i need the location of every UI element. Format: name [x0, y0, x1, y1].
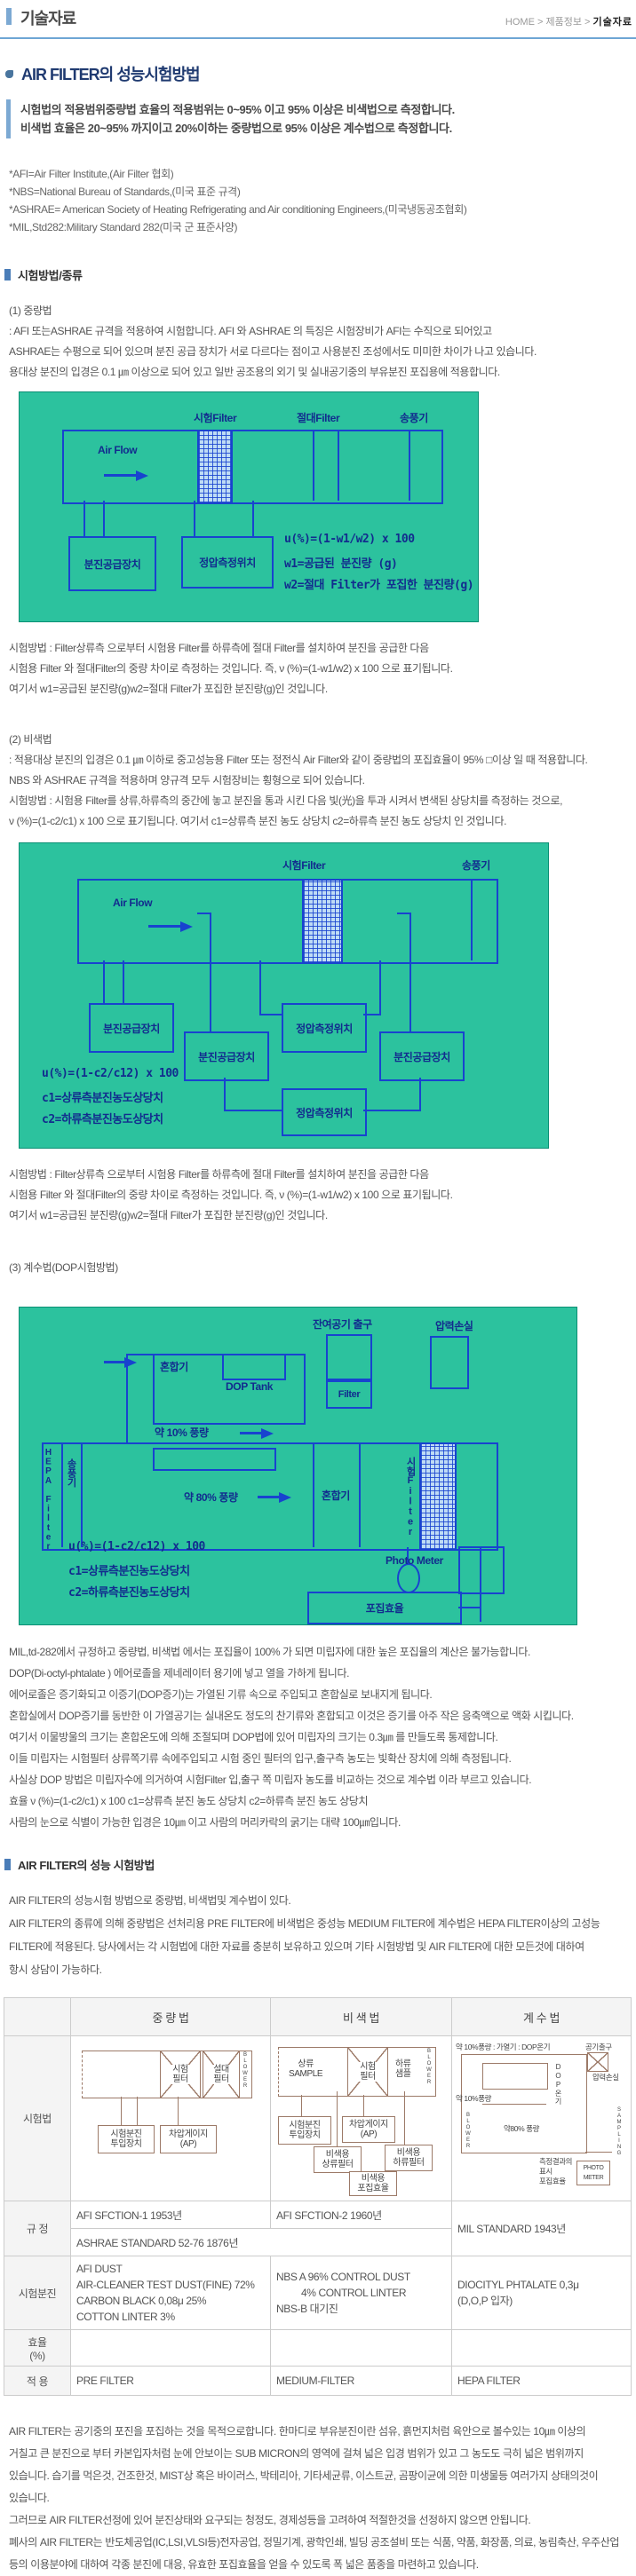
method1-description: (1) 중량법 : AFI 또는ASHRAE 규격을 적용하여 시험합니다. A…: [9, 301, 636, 383]
dop-description: MIL,td-282에서 규정하고 중량법, 비색법 에서는 포집율이 100%…: [9, 1641, 636, 1833]
intro-summary: 시험법의 적용범위중량법 효율의 적용범위는 0~95% 이고 95% 이상은 …: [6, 99, 636, 138]
formula-line: u(%)=(1-w1/w2) x 100: [284, 533, 415, 546]
breadcrumb: HOME > 제품정보 > 기술자료: [505, 14, 632, 28]
row-label: 시험분진: [4, 2256, 71, 2330]
diagram-label: 시험Filter: [282, 857, 325, 873]
eighty-percent-label: 약 80% 풍량: [184, 1489, 238, 1505]
blower-label: BLOWER: [465, 2113, 471, 2152]
photo-meter-label: Photo Meter: [386, 1554, 443, 1567]
method2-title: (2) 비색법: [9, 730, 636, 750]
collection-efficiency-box: 포집효율: [307, 1592, 462, 1624]
row-label: 효율 (%): [4, 2330, 71, 2367]
mini-diagram-weight: 시험 필터 설대 필터 BLOWER 시험분진 투입장치 차압게이지 (AP): [71, 2036, 270, 2201]
filter-box: Filter: [326, 1380, 372, 1409]
upstream-sample-label: 상류 SAMPLE: [289, 2059, 322, 2079]
eighty-percent-label: 약80% 풍량: [504, 2123, 539, 2134]
pressure-loss-label: 압력손실: [592, 2072, 619, 2082]
dust-inject-box: 시험분진 투입장치: [278, 2116, 331, 2145]
top-flow-label: 약 10%풍량 : 가열기 : DOP온기: [456, 2042, 550, 2052]
col-header-weight: 중 량 법: [71, 1998, 271, 2036]
diagram-weight-method: 시험Filter 절대Filter 송풍기 Air Flow 분진공급장치 정압…: [19, 391, 479, 622]
valve-icon: [397, 1563, 420, 1593]
intro-line: 비색법 효율은 20~95% 까지이고 20%이하는 중량법으로 95% 이상은…: [20, 119, 636, 138]
table-row-efficiency: 효율 (%): [4, 2330, 632, 2367]
diagram-label: 압력손실: [435, 1318, 473, 1333]
diagram-label: 송풍기: [400, 410, 428, 425]
ten-percent-label: 약 10% 풍량: [155, 1425, 209, 1440]
static-pressure-box: 정압측정위치: [181, 536, 274, 589]
intro-line: 시험법의 적용범위중량법 효율의 적용범위는 0~95% 이고 95% 이상은 …: [20, 100, 636, 119]
diagram-dop-method: 잔여공기 출구 압력손실 Filter 혼합기 DOP Tank 약 10% 풍…: [19, 1307, 577, 1625]
formula-line: w1=공급된 분진량 (g): [284, 554, 397, 571]
dp-gauge-box: 차압게이지 (AP): [342, 2116, 395, 2143]
method1-result: 시험방법 : Filter상류측 으로부터 시험용 Filter를 하류측에 절…: [9, 638, 636, 699]
table-row-standard-1: 규 정 AFI SFCTION-1 1953년 AFI SFCTION-2 19…: [4, 2201, 632, 2229]
table-row-apply: 적 용 PRE FILTER MEDIUM-FILTER HEPA FILTER: [4, 2367, 632, 2396]
test-filter-element: [197, 430, 233, 504]
photo-meter-box: [458, 1546, 505, 1594]
breadcrumb-current: 기술자료: [593, 17, 632, 28]
pressure-loss-box: [430, 1336, 469, 1389]
mini-diagram-color: 상류 SAMPLE 시험 필터 하류 샘플 BLOWER 시험분진 투입장치 차…: [271, 2036, 451, 2201]
test-filter: 시험 필터: [347, 2047, 388, 2097]
test-filter: 시험 필터: [160, 2051, 201, 2098]
section-title-methods: 시험방법/종류: [4, 266, 636, 283]
method3-title: (3) 계수법(DOP시험방법): [9, 1258, 636, 1278]
downstream-sample-label: 하류 샘플: [395, 2059, 411, 2079]
bypass-duct: [153, 1448, 276, 1471]
breadcrumb-separator: >: [537, 17, 543, 28]
formula-line: c2=하류측분진농도상당치: [42, 1110, 163, 1126]
dop-tank-box: [222, 1354, 286, 1380]
breadcrumb-home[interactable]: HOME: [505, 17, 535, 28]
color-efficiency-box: 비색용 포집효율: [349, 2171, 397, 2196]
formula-line: w2=절대 Filter가 포집한 분진량(g): [284, 575, 473, 592]
formula-line: c1=상류측분진농도상당치: [42, 1088, 163, 1105]
col-header-count: 계 수 법: [452, 1998, 632, 2036]
diagram-label: 절대Filter: [297, 410, 339, 425]
airflow-arrow: [104, 474, 138, 477]
apply-count: HEPA FILTER: [452, 2367, 632, 2396]
sampling-label: SAMPLING: [616, 2107, 622, 2157]
duct: [62, 430, 443, 504]
performance-description: AIR FILTER의 성능시험 방법으로 중량법, 비색법및 계수법이 있다.…: [9, 1889, 636, 1981]
method2-result: 시험방법 : Filter상류측 으로부터 시험용 Filter를 하류측에 절…: [9, 1165, 636, 1226]
ten-percent-label: 약 10%풍량: [456, 2093, 491, 2104]
table-header-row: 중 량 법 비 색 법 계 수 법: [4, 1998, 632, 2036]
airflow-label: Air Flow: [98, 444, 137, 456]
table-row-dust: 시험분진 AFI DUST AIR-CLEANER TEST DUST(FINE…: [4, 2256, 632, 2330]
breadcrumb-separator: >: [584, 17, 590, 28]
footnote: *NBS=National Bureau of Standards,(미국 표준…: [9, 183, 636, 201]
duct: [77, 879, 498, 964]
col-header-color: 비 색 법: [271, 1998, 452, 2036]
diagram-label: 송풍기: [462, 857, 490, 873]
formula-line: u(%)=(1-c2/c12) x 100: [42, 1067, 179, 1080]
square-bullet-icon: [4, 1859, 11, 1870]
test-filter-label: 시험Filter: [403, 1457, 417, 1537]
airflow-arrow: [148, 925, 182, 928]
breadcrumb-products[interactable]: 제품정보: [545, 17, 581, 28]
std-color: AFI SFCTION-2 1960년: [271, 2201, 452, 2229]
square-bullet-icon: [4, 269, 11, 281]
dust-supply-box: 분진공급장치: [184, 1031, 269, 1081]
dop-chamber: [482, 2063, 548, 2090]
formula-line: c2=하류측분진농도상당치: [68, 1583, 190, 1600]
section-heading-main: AIR FILTER의 성능시험방법: [5, 62, 636, 85]
footnote: *AFI=Air Filter Institute,(Air Filter 협회…: [9, 165, 636, 183]
test-filter-element: [302, 879, 343, 964]
footnote: *MIL,Std282:Military Standard 282(미국 군 표…: [9, 218, 636, 236]
apply-weight: PRE FILTER: [71, 2367, 271, 2396]
formula-line: u(%)=(1-c2/c12) x 100: [68, 1540, 205, 1553]
static-pressure-box: 정압측정위치: [282, 1003, 367, 1053]
formula-line: c1=상류측분진농도상당치: [68, 1561, 190, 1578]
pressure-valve: [587, 2052, 608, 2072]
table-row-method: 시험법 시험 필터 설대 필터 BLOWER 시험분진 투입장치 차압게이지 (…: [4, 2036, 632, 2201]
dust-supply-box: 분진공급장치: [68, 536, 156, 591]
row-label: 규 정: [4, 2201, 71, 2256]
method2-description: (2) 비색법 : 적용대상 분진의 입경은 0.1 ㎛ 이하로 중고성능용 F…: [9, 730, 636, 832]
diagram-label: 시험Filter: [194, 410, 236, 425]
closing-paragraph: AIR FILTER는 공기중의 포진을 포집하는 것을 목적으로합니다. 한마…: [9, 2421, 636, 2576]
test-filter-element: [419, 1442, 457, 1551]
diagram-color-method: 시험Filter 송풍기 Air Flow 분진공급장치 정압측정위치 분진공급…: [19, 842, 549, 1149]
static-pressure-box: 정압측정위치: [282, 1088, 367, 1136]
dust-supply-box: 분진공급장치: [379, 1031, 465, 1081]
method1-title: (1) 중량법: [9, 301, 636, 321]
blower-label: BLOWER: [242, 2052, 248, 2095]
title-accent-bar: [6, 8, 12, 25]
diagram-label: 잔여공기 출구: [313, 1316, 372, 1331]
row-label: 시험법: [4, 2036, 71, 2201]
method-comparison-table: 중 량 법 비 색 법 계 수 법 시험법 시험 필터 설대 필터 BLOWER…: [4, 1997, 632, 2396]
std-weight: AFI SFCTION-1 1953년: [71, 2201, 271, 2229]
footnote: *ASHRAE= American Society of Heating Ref…: [9, 201, 636, 218]
dop-tank-label: DOP Tank: [226, 1380, 273, 1393]
mini-diagram-count: 약 10%풍량 : 가열기 : DOP온기 공기출구 압력손실 DOP온기 약 …: [452, 2036, 631, 2201]
air-out-label: 공기출구: [585, 2042, 612, 2052]
mixer-label: 혼합기: [160, 1359, 188, 1374]
absolute-filter: 설대 필터: [203, 2051, 240, 2098]
mixer2-label: 혼합기: [322, 1488, 350, 1503]
section-title-performance: AIR FILTER의 성능 시험방법: [4, 1856, 636, 1873]
photo-meter-box: PHOTO METER: [576, 2161, 610, 2185]
dp-gauge-box: 차압게이지 (AP): [160, 2125, 217, 2153]
airflow-label: Air Flow: [113, 897, 152, 909]
fan-label: 송풍기: [64, 1458, 78, 1538]
dust-inject-box: 시험분진 투입장치: [98, 2125, 155, 2153]
section-heading-text: AIR FILTER의 성능시험방법: [21, 62, 200, 85]
color-upstream-filter-box: 비색용 상류필터: [314, 2146, 362, 2173]
bullet-icon: [5, 70, 13, 78]
hepa-filter-label: HEPA Filter: [44, 1448, 53, 1544]
page-header: 기술자료 HOME > 제품정보 > 기술자료: [0, 0, 636, 39]
color-downstream-filter-box: 비색용 하류필터: [385, 2145, 433, 2171]
blower-label: BLOWER: [425, 2049, 432, 2093]
exhaust-box: [326, 1334, 372, 1380]
row-label: 적 용: [4, 2367, 71, 2396]
dop-vertical-label: DOP온기: [555, 2063, 561, 2116]
std-shared: ASHRAE STANDARD 52-76 1876년: [71, 2229, 452, 2256]
std-count: MIL STANDARD 1943년: [452, 2201, 632, 2256]
dust-supply-box: 분진공급장치: [89, 1003, 174, 1053]
result-label: 측정결과의 표시 포집효율: [539, 2157, 572, 2186]
page-title: 기술자료: [20, 6, 76, 29]
footnotes: *AFI=Air Filter Institute,(Air Filter 협회…: [9, 165, 636, 236]
apply-color: MEDIUM-FILTER: [271, 2367, 452, 2396]
